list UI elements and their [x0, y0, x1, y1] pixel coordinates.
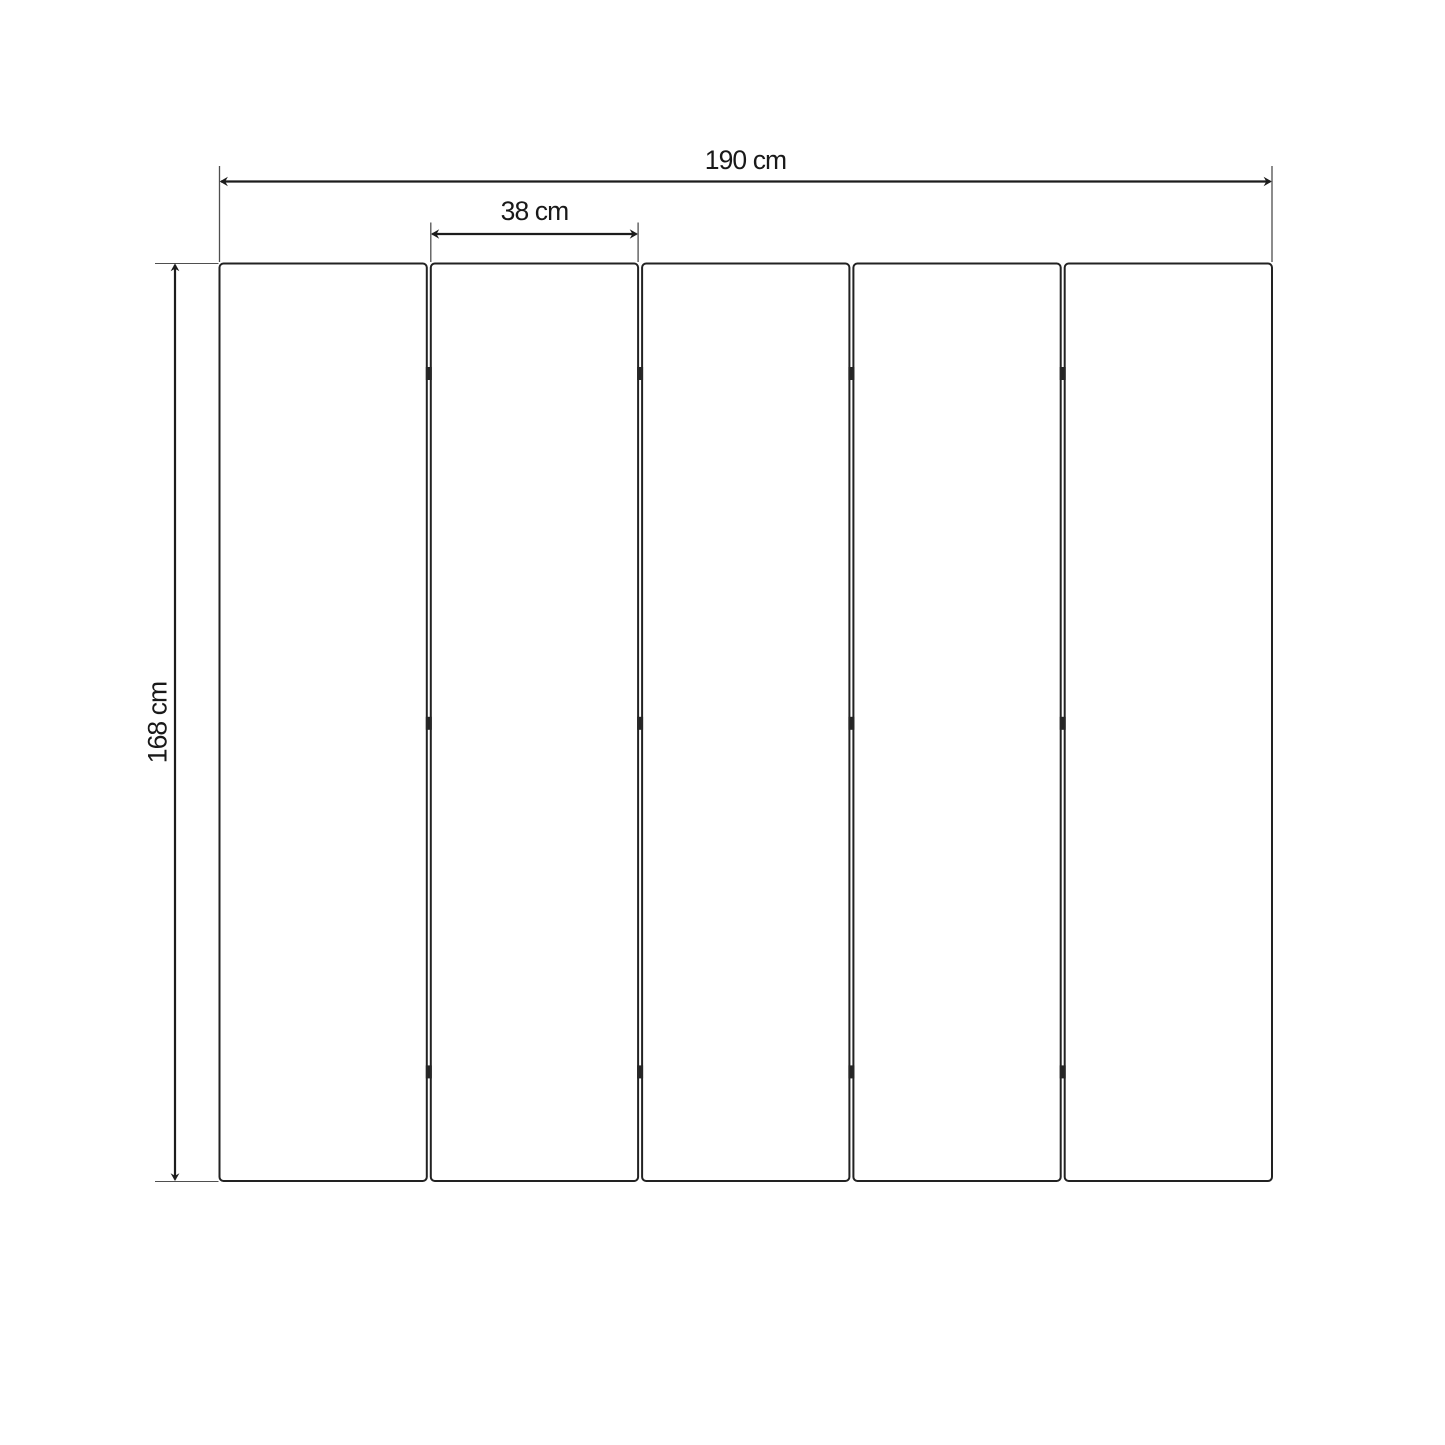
- svg-text:168 cm: 168 cm: [143, 682, 173, 764]
- svg-text:38 cm: 38 cm: [501, 196, 569, 226]
- svg-text:190 cm: 190 cm: [705, 145, 787, 175]
